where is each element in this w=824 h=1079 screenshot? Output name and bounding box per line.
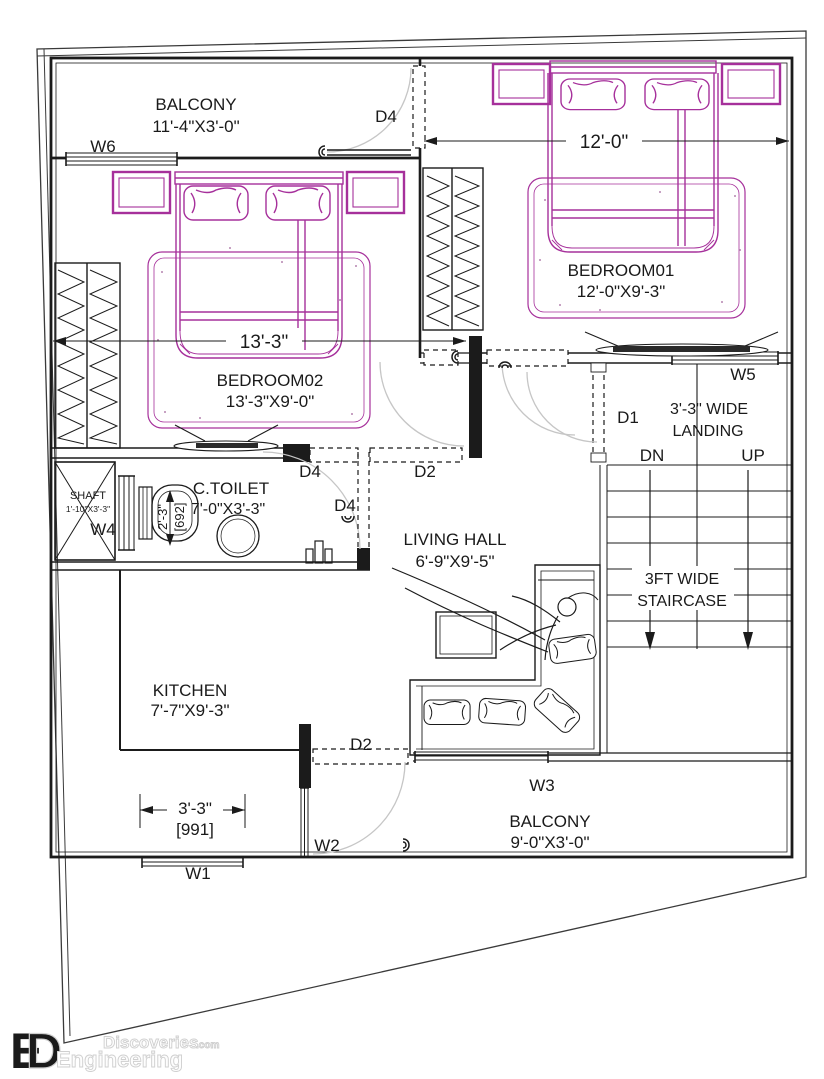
room-label-living: LIVING HALL [404, 530, 507, 549]
door-label-d2-balcony: D2 [350, 735, 372, 754]
staircase-label-line2: STAIRCASE [637, 593, 727, 610]
landing-label-line2: LANDING [672, 423, 743, 440]
room-label-shaft: SHAFT [70, 490, 106, 502]
door-opening-d1 [593, 366, 604, 461]
room-size-balcony-top: 11'-4"X3'-0" [152, 117, 239, 136]
door-opening-d2-living [370, 448, 462, 462]
window-w6 [66, 152, 177, 166]
door-opening-bedroom01 [487, 350, 568, 366]
sofa [410, 565, 600, 755]
room-label-bedroom01: BEDROOM01 [568, 261, 675, 280]
dim-text-692: [692] [172, 503, 187, 532]
dim-text-12-0: 12'-0" [580, 132, 628, 153]
nightstand [113, 172, 170, 213]
dim-kitchen-opening: 3'-3" [991] [140, 794, 245, 839]
room-size-shaft: 1'-10"X3'-3" [66, 504, 110, 514]
dim-text-2-3: 2'-3" [155, 504, 170, 530]
room-label-kitchen: KITCHEN [153, 681, 228, 700]
door-label-d4-toilet: D4 [299, 462, 321, 481]
bed-bedroom01 [548, 61, 718, 252]
room-size-balcony-bottom: 9'-0"X3'-0" [510, 833, 589, 852]
dim-bedroom01-width: 12'-0" [424, 128, 789, 154]
window-label-w1: W1 [185, 864, 211, 883]
dim-text-991: [991] [176, 820, 214, 839]
dim-text-13-3: 13'-3" [240, 332, 288, 353]
wash-basin [217, 515, 259, 557]
room-size-kitchen: 7'-7"X9'-3" [150, 701, 229, 720]
room-size-bedroom02: 13'-3"X9'-0" [226, 392, 315, 411]
floor-plan-canvas: 12'-0" 13'-3" 3'-3" [991] 2'-3" [692] BA… [0, 0, 824, 1079]
dresser-bedroom01 [585, 332, 778, 356]
stairs-label-up: UP [741, 446, 765, 465]
wardrobe-bedroom02 [55, 263, 120, 448]
window-label-w4: W4 [90, 520, 116, 539]
room-size-living: 6'-9"X9'-5" [415, 552, 494, 571]
living-furniture [392, 565, 600, 755]
door-opening-d4-toilet [310, 448, 358, 462]
room-label-toilet: C.TOILET [193, 479, 269, 498]
door-opening-d4-balcony [413, 66, 425, 148]
nightstand [722, 64, 780, 104]
staircase-label-line1: 3FT WIDE [645, 571, 719, 588]
door-leaf [327, 150, 411, 155]
logo-engineering: Engineering [56, 1047, 183, 1072]
dresser-bedroom02 [174, 425, 278, 451]
room-size-bedroom01: 12'-0"X9'-3" [577, 282, 666, 301]
door-label-d4-toilet2: D4 [334, 496, 356, 515]
wardrobe-bedroom01 [423, 168, 483, 330]
taps [306, 541, 332, 563]
window-w3 [415, 750, 548, 764]
nightstand [493, 64, 550, 104]
room-label-balcony-top: BALCONY [155, 95, 236, 114]
logo-com: .com [196, 1040, 219, 1051]
landing-label-line1: 3'-3" WIDE [670, 401, 748, 418]
door-label-d2-living: D2 [414, 462, 436, 481]
window-label-w6: W6 [90, 137, 116, 156]
room-label-bedroom02: BEDROOM02 [217, 371, 324, 390]
room-size-toilet: 7'-0"X3'-3" [191, 501, 265, 518]
window-w4 [118, 476, 135, 550]
nightstand [347, 172, 404, 213]
dim-bedroom02-width: 13'-3" [53, 328, 466, 353]
door-label-d4-balcony: D4 [375, 107, 397, 126]
door-opening-d4-toilet-side [358, 452, 369, 548]
window-label-w5: W5 [730, 365, 756, 384]
window-label-w3: W3 [529, 776, 555, 795]
room-label-balcony-bottom: BALCONY [509, 812, 590, 831]
window-label-w2: W2 [314, 836, 340, 855]
door-label-d1: D1 [617, 408, 639, 427]
dim-text-3-3: 3'-3" [178, 799, 212, 818]
coffee-table [436, 612, 496, 658]
door-opening-bedroom02 [424, 350, 458, 365]
window-w2 [300, 788, 309, 856]
stairs-label-dn: DN [640, 446, 665, 465]
